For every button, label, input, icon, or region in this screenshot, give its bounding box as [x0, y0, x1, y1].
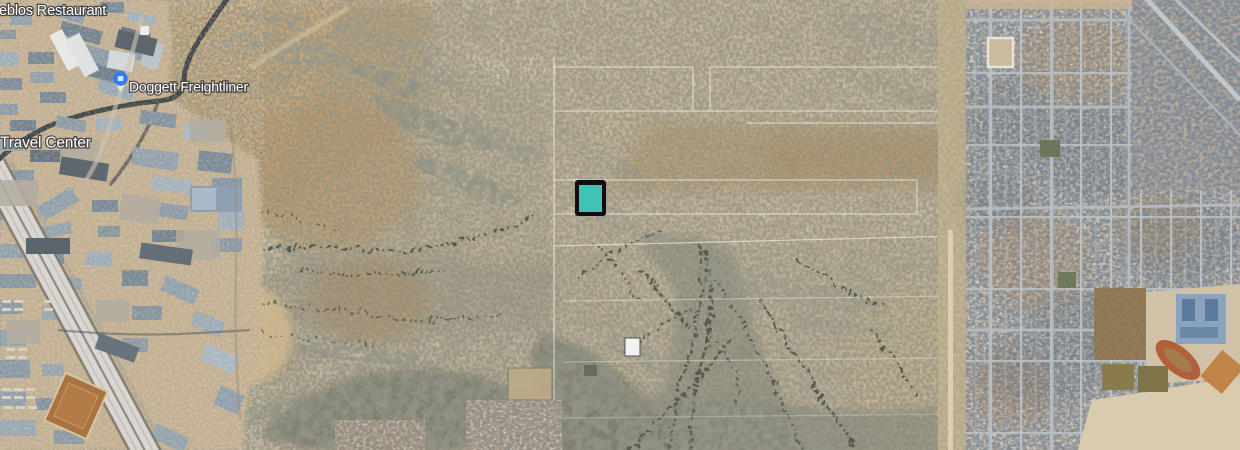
- svg-text:Doggett Freightliner: Doggett Freightliner: [129, 79, 248, 95]
- svg-text:eblos Restaurant: eblos Restaurant: [0, 3, 106, 19]
- svg-text:Travel Center: Travel Center: [0, 135, 91, 152]
